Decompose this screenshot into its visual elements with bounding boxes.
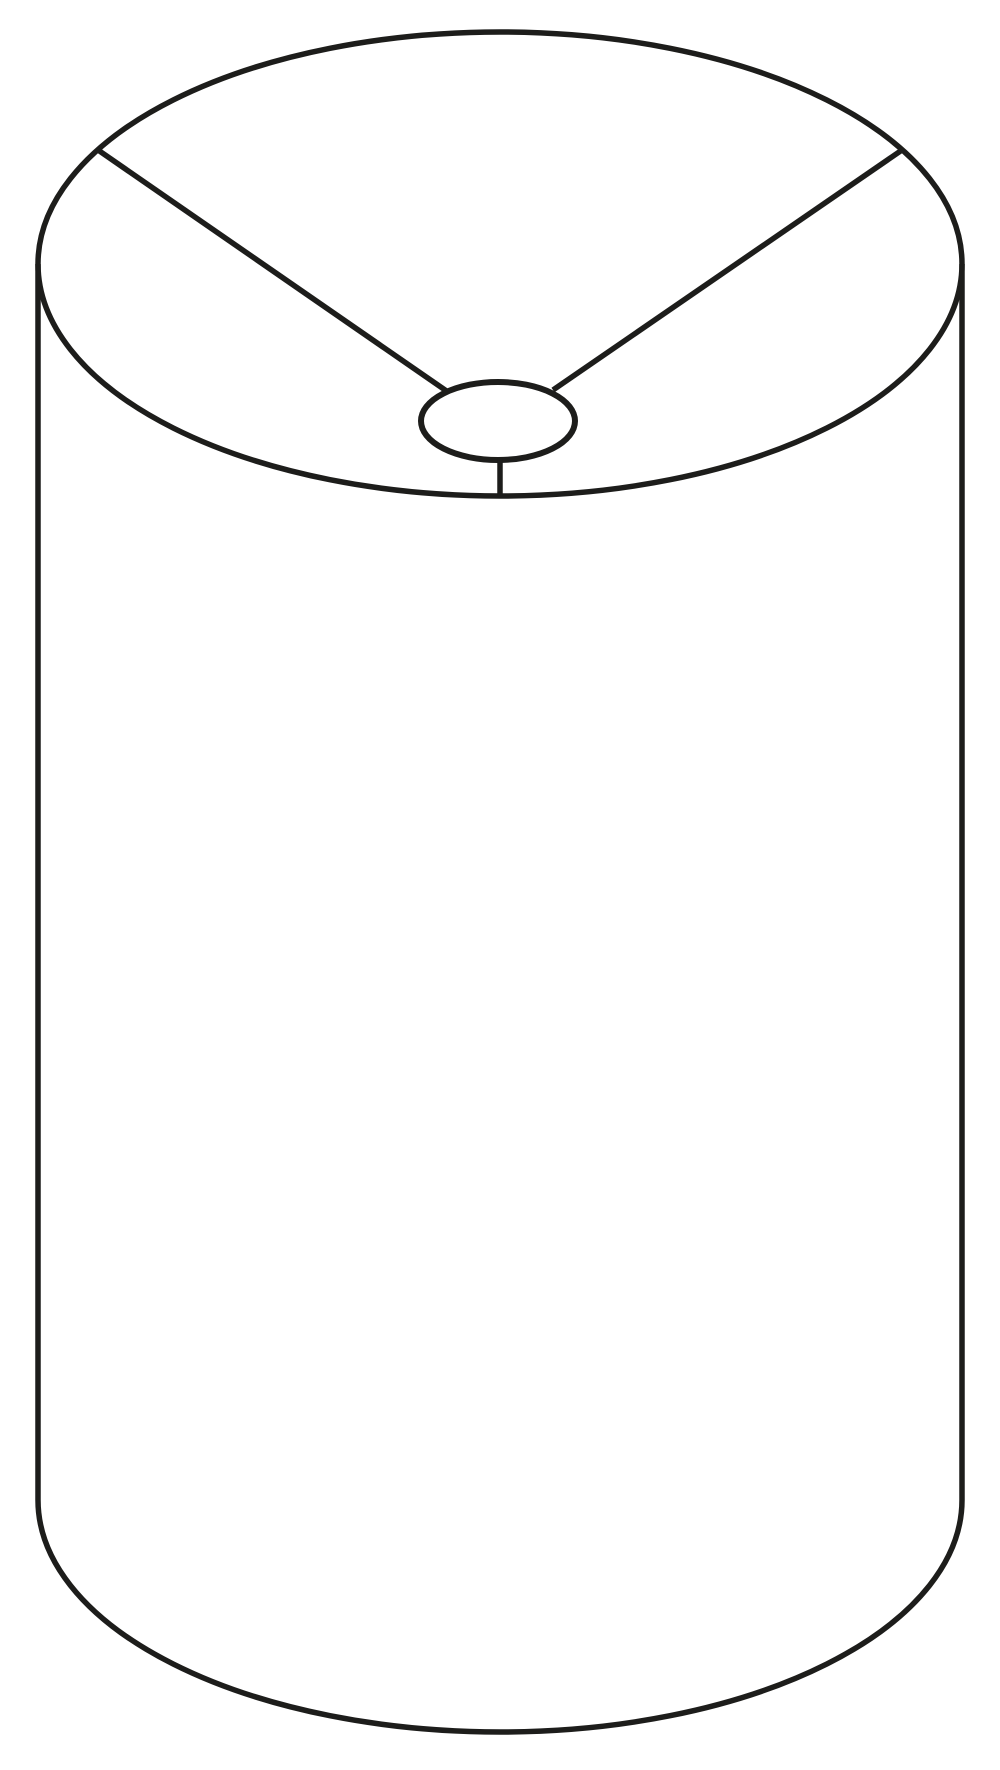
fitter-ring-ellipse	[421, 382, 575, 460]
fitter-right-spoke	[553, 150, 902, 390]
lampshade-line-drawing	[0, 0, 1000, 1770]
top-rim-ellipse	[38, 32, 962, 496]
bottom-rim-arc	[38, 1500, 962, 1732]
fitter-left-spoke	[98, 150, 448, 392]
canvas	[0, 0, 1000, 1770]
